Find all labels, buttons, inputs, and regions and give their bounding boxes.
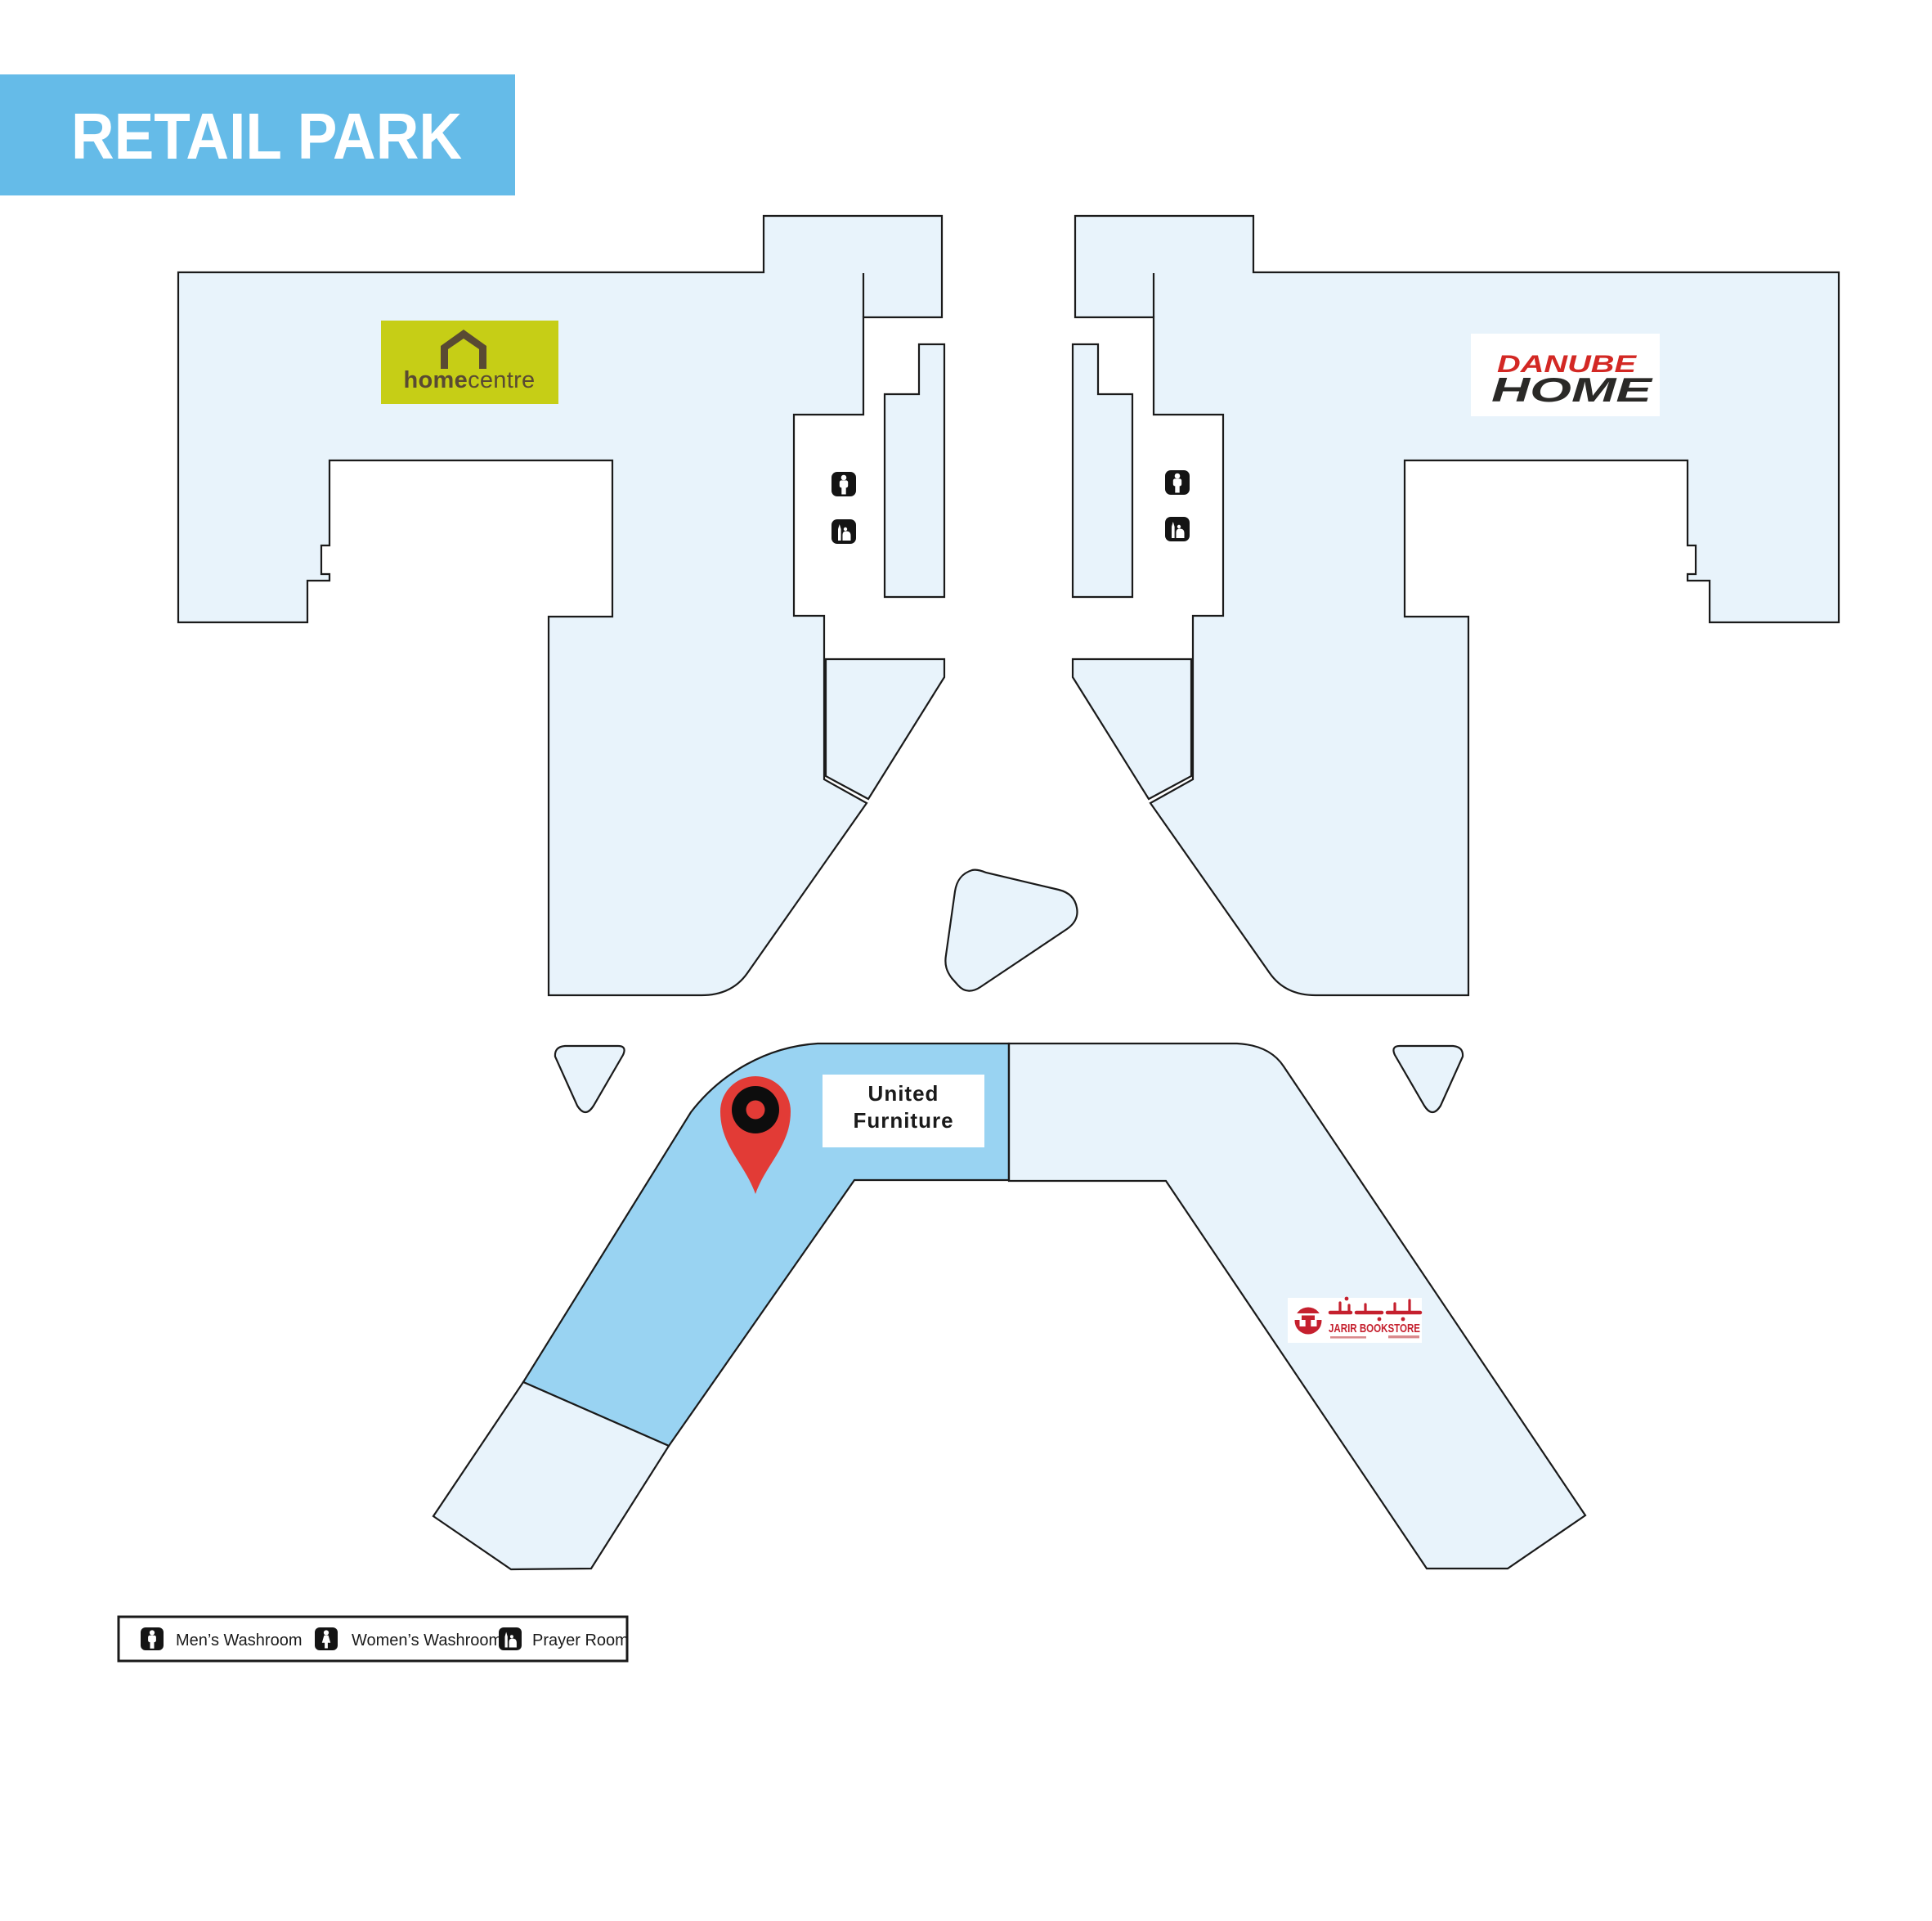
svg-text:HOME: HOME <box>1491 370 1654 409</box>
svg-text:JARIR BOOKSTORE: JARIR BOOKSTORE <box>1329 1322 1420 1335</box>
svg-text:Men’s Washroom: Men’s Washroom <box>176 1632 303 1649</box>
svg-text:Furniture: Furniture <box>853 1108 953 1133</box>
svg-text:homecentre: homecentre <box>404 367 536 393</box>
svg-text:Prayer Room: Prayer Room <box>532 1632 629 1649</box>
svg-text:Women’s Washroom: Women’s Washroom <box>352 1632 502 1649</box>
svg-text:United: United <box>868 1081 939 1106</box>
svg-text:RETAIL PARK: RETAIL PARK <box>71 100 462 173</box>
